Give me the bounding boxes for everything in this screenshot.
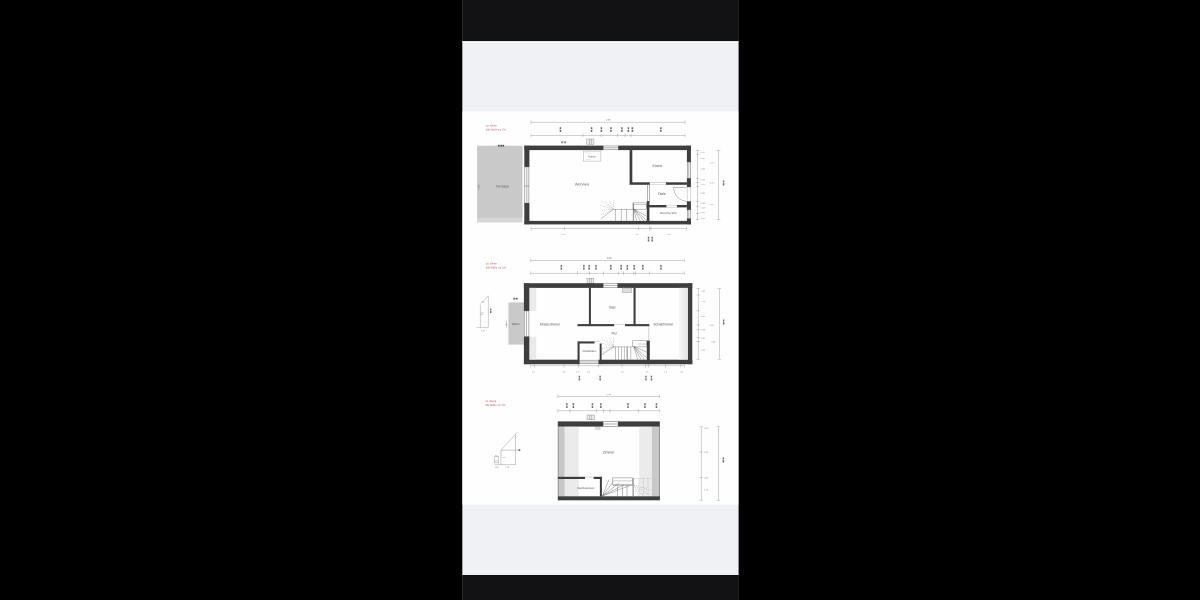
svg-text:Bad: Bad bbox=[609, 305, 615, 309]
svg-text:Zimmer: Zimmer bbox=[603, 450, 615, 454]
svg-text:0.9: 0.9 bbox=[495, 461, 498, 463]
svg-text:ca. Werte: ca. Werte bbox=[485, 399, 497, 403]
svg-text:1.76: 1.76 bbox=[505, 467, 509, 469]
svg-text:alle Maße vor Ort: alle Maße vor Ort bbox=[486, 127, 506, 131]
svg-text:Diele: Diele bbox=[658, 192, 666, 196]
svg-text:9.99: 9.99 bbox=[607, 258, 612, 260]
svg-text:ca. Werte: ca. Werte bbox=[486, 124, 498, 128]
svg-text:8.18: 8.18 bbox=[607, 394, 612, 396]
svg-text:alle Maße vor Ort: alle Maße vor Ort bbox=[485, 403, 505, 407]
svg-text:Flur: Flur bbox=[611, 332, 618, 336]
svg-text:Küche: Küche bbox=[653, 164, 663, 168]
svg-text:Kamin: Kamin bbox=[588, 154, 596, 158]
svg-text:2.47: 2.47 bbox=[502, 457, 506, 459]
svg-text:9.99: 9.99 bbox=[606, 120, 611, 122]
svg-text:0.76: 0.76 bbox=[481, 330, 485, 332]
svg-text:0.9: 0.9 bbox=[481, 312, 484, 314]
svg-text:1.05: 1.05 bbox=[495, 467, 499, 469]
svg-text:Abstellraum: Abstellraum bbox=[583, 349, 597, 353]
svg-text:ca. Werte: ca. Werte bbox=[486, 262, 498, 266]
svg-text:Dusche-WC: Dusche-WC bbox=[660, 211, 677, 215]
svg-text:Dachbodenraum: Dachbodenraum bbox=[578, 487, 595, 490]
svg-text:0.8: 0.8 bbox=[482, 302, 485, 304]
svg-text:Kinderzimmer: Kinderzimmer bbox=[540, 323, 561, 327]
svg-text:Wohnen: Wohnen bbox=[575, 182, 589, 187]
svg-text:Terrasse: Terrasse bbox=[496, 185, 509, 189]
svg-text:alle Maße vor Ort: alle Maße vor Ort bbox=[486, 266, 506, 270]
svg-text:Balkon: Balkon bbox=[512, 323, 520, 326]
svg-text:Schlafzimmer: Schlafzimmer bbox=[653, 323, 674, 327]
svg-text:0.8: 0.8 bbox=[495, 455, 498, 457]
